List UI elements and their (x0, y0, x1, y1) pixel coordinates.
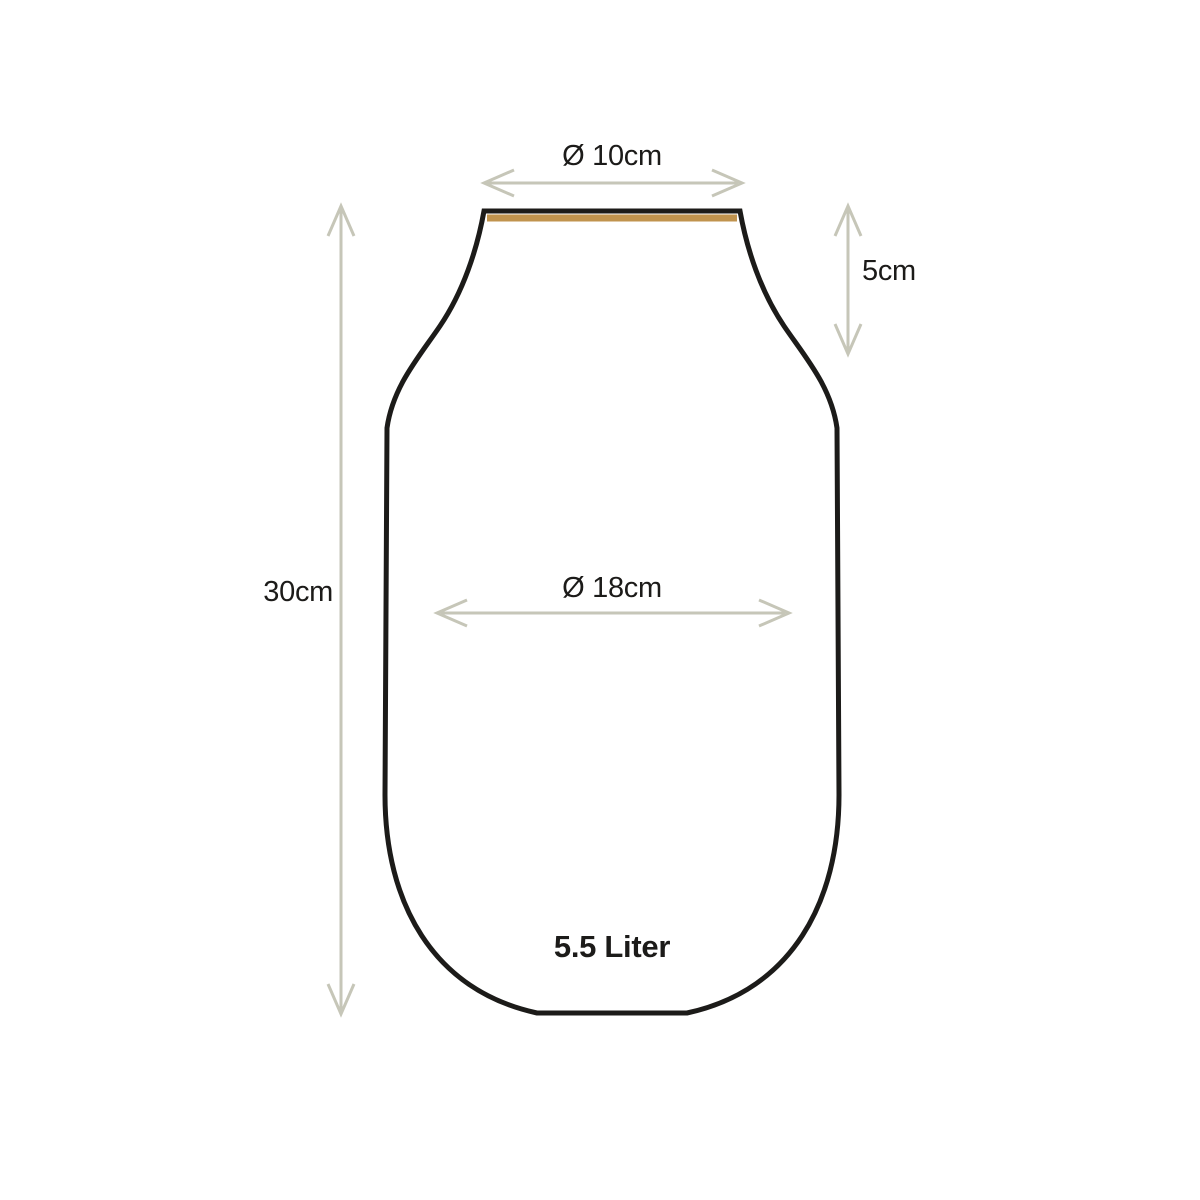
neck-height-arrow (835, 206, 861, 354)
body-diameter-label: Ø 18cm (462, 574, 762, 603)
neck-height-label: 5cm (862, 257, 916, 286)
top-diameter-label: Ø 10cm (462, 142, 762, 171)
top-diameter-arrow (484, 170, 742, 196)
capacity-label: 5.5 Liter (462, 931, 762, 962)
total-height-arrow (328, 206, 354, 1014)
vase-dimension-diagram: Ø 10cm 5cm 30cm Ø 18cm 5.5 Liter (0, 0, 1200, 1200)
total-height-label: 30cm (220, 578, 333, 607)
